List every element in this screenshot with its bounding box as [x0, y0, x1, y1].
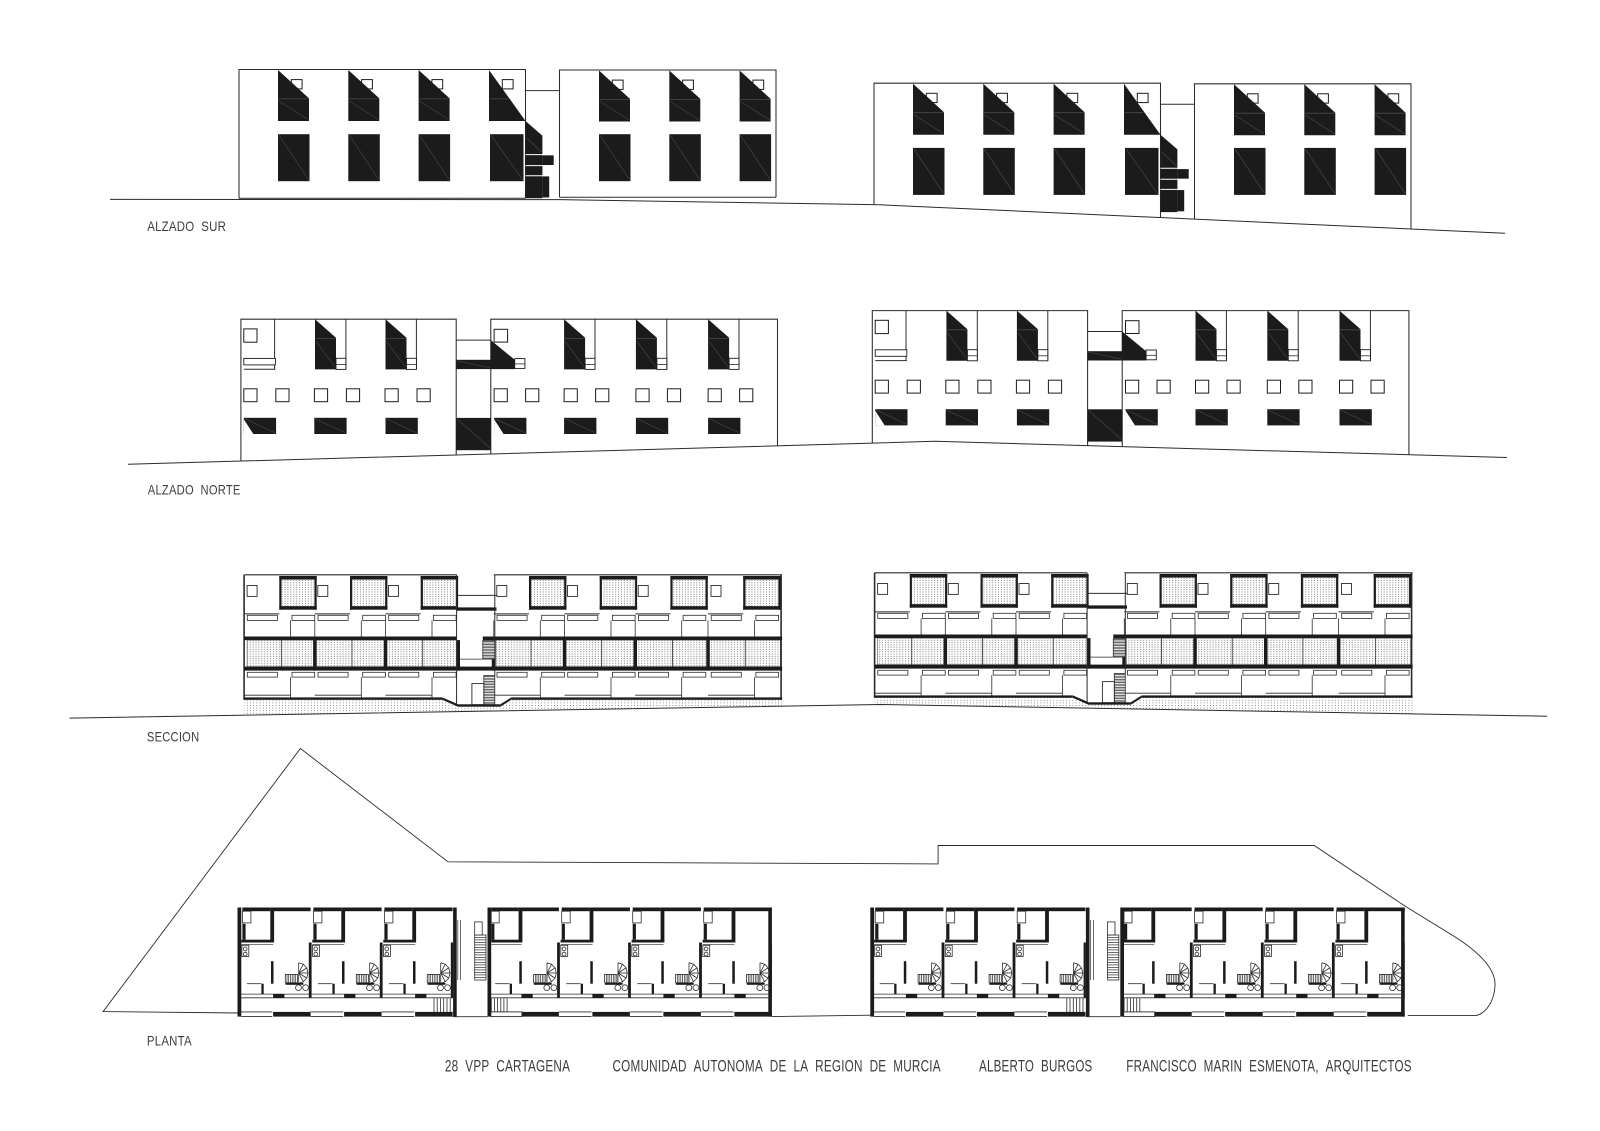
svg-text:COMUNIDAD AUTONOMA DE LA R: COMUNIDAD AUTONOMA DE LA REGION DE MURCI… [613, 1058, 941, 1076]
svg-text:ALZADO NORTE: ALZADO NORTE [148, 481, 241, 497]
svg-text:ALBERTO BURGOS: ALBERTO BURGOS [979, 1058, 1093, 1076]
svg-text:FRANCISCO MARIN ESMENOTA, A: FRANCISCO MARIN ESMENOTA, ARQUITECTOS [1126, 1058, 1412, 1076]
svg-text:ALZADO SUR: ALZADO SUR [147, 218, 226, 234]
svg-text:SECCION: SECCION [147, 729, 200, 745]
svg-text:PLANTA: PLANTA [147, 1032, 192, 1048]
svg-text:28 VPP CARTAGENA: 28 VPP CARTAGENA [445, 1058, 570, 1076]
